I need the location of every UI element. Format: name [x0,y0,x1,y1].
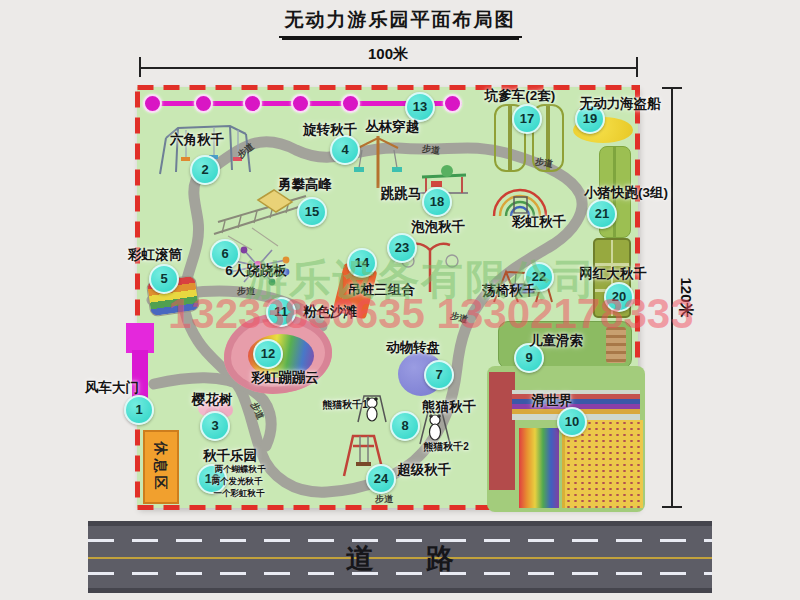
marker-17: 17 [512,104,542,134]
label-16: 秋千乐园 [203,447,257,465]
marker-10: 10 [557,407,587,437]
extra-label-1: 熊猫秋千1 [322,398,368,412]
label-21: 小猪快跑(3组) [584,184,668,202]
marker-21: 21 [587,199,617,229]
label-15: 勇攀高峰 [278,176,332,194]
label-4: 旋转秋千 [303,121,357,139]
watermark-phone: 13233836635 13302178333 [168,290,694,338]
path-label-5: 步道 [375,493,393,506]
label-18: 跳跳马 [381,185,422,203]
label-5: 彩虹滚筒 [128,246,182,264]
extra-label-0: 彩虹秋千 [512,213,566,231]
marker-15: 15 [297,197,327,227]
marker-2: 2 [190,155,220,185]
extra-label-5: 一个彩虹秋千 [214,488,265,500]
path-label-0: 步道 [235,140,257,161]
label-24: 超级秋千 [397,461,451,479]
marker-8: 8 [390,411,420,441]
label-10: 滑世界 [532,392,573,410]
marker-24: 24 [366,464,396,494]
label-19: 无动力海盗船 [580,95,661,113]
extra-label-3: 两个蝴蝶秋千 [215,464,266,476]
label-2: 六角秋千 [170,131,224,149]
marker-1: 1 [124,395,154,425]
path-label-2: 步道 [534,155,554,171]
label-13: 丛林穿越 [365,118,419,136]
label-17: 坑爹车(2套) [485,87,556,105]
extra-label-2: 熊猫秋千2 [423,440,469,454]
marker-18: 18 [422,187,452,217]
screenshot-canvas: { "title": "无动力游乐园平面布局图", "dimensions": … [0,0,800,600]
label-12: 彩虹蹦蹦云 [251,369,319,387]
path-label-6: 步道 [247,400,266,422]
marker-4: 4 [330,135,360,165]
label-1: 风车大门 [85,379,139,397]
extra-label-4: 两个发光秋千 [212,476,263,488]
label-7: 动物转盘 [386,339,440,357]
marker-3: 3 [200,411,230,441]
label-8: 熊猫秋千 [422,398,476,416]
marker-7: 7 [424,360,454,390]
label-3: 樱花树 [192,391,233,409]
path-label-1: 步道 [421,142,441,157]
marker-12: 12 [253,339,283,369]
label-23: 泡泡秋千 [411,218,465,236]
